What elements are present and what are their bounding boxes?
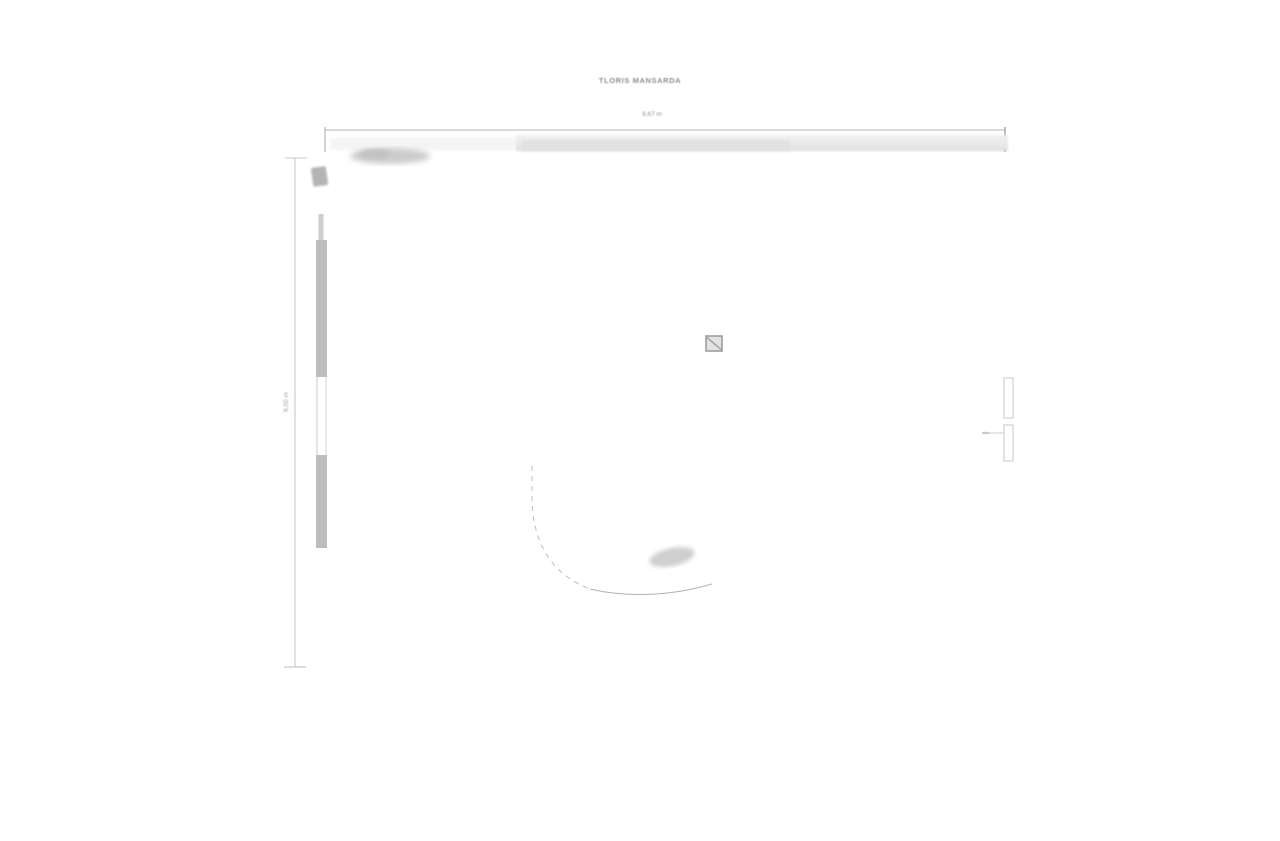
floorplan-drawing xyxy=(0,0,1280,841)
left-window xyxy=(317,377,326,455)
right-window-upper xyxy=(1004,378,1013,418)
door-arc-solid xyxy=(590,584,712,594)
arc-smudge xyxy=(648,543,697,570)
top-wall xyxy=(330,135,1008,151)
left-wall-segment-lower xyxy=(316,455,327,548)
door-arc-dashed xyxy=(532,466,590,589)
dimension-left xyxy=(284,158,307,667)
right-window-lower xyxy=(1004,425,1013,461)
right-wall-windows xyxy=(982,378,1013,461)
top-wall-faint-left xyxy=(330,138,525,150)
topleft-smudge xyxy=(350,148,430,164)
top-wall-band-dark xyxy=(522,140,790,151)
left-wall-segment-upper xyxy=(316,240,327,377)
left-wall-corner-block xyxy=(311,166,328,187)
smudge-blob-core xyxy=(359,149,391,159)
door-swing-arc xyxy=(532,466,712,594)
left-wall-segment-thin xyxy=(319,214,324,241)
left-wall xyxy=(311,166,328,548)
chimney-symbol xyxy=(706,336,722,351)
floorplan-sheet: TLORIS MANSARDA 9,67 m 6,00 m xyxy=(0,0,1280,841)
